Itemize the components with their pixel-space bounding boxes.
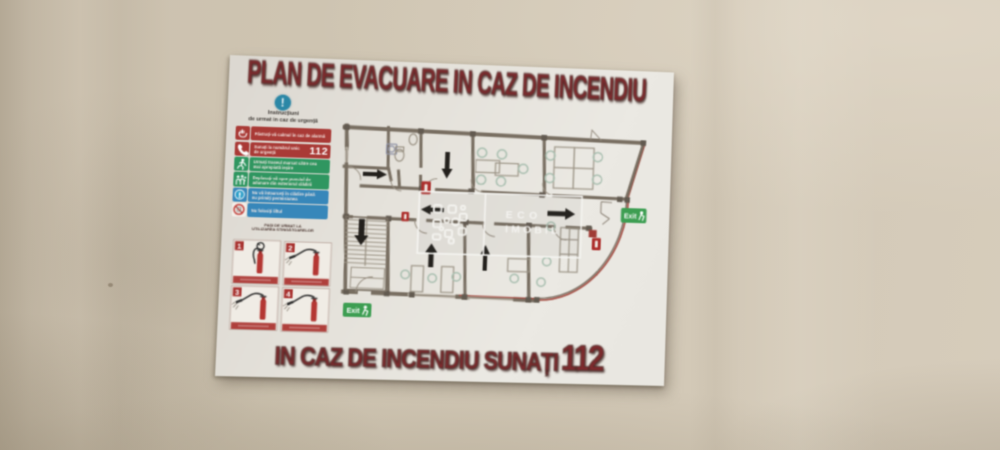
svg-text:Exit: Exit <box>346 308 360 315</box>
svg-text:Exit: Exit <box>624 213 637 220</box>
svg-text:3: 3 <box>235 288 240 297</box>
svg-text:ECO: ECO <box>505 209 541 222</box>
svg-text:2: 2 <box>288 244 293 253</box>
svg-text:IMOBIL: IMOBIL <box>505 223 561 236</box>
svg-text:1: 1 <box>237 242 242 251</box>
